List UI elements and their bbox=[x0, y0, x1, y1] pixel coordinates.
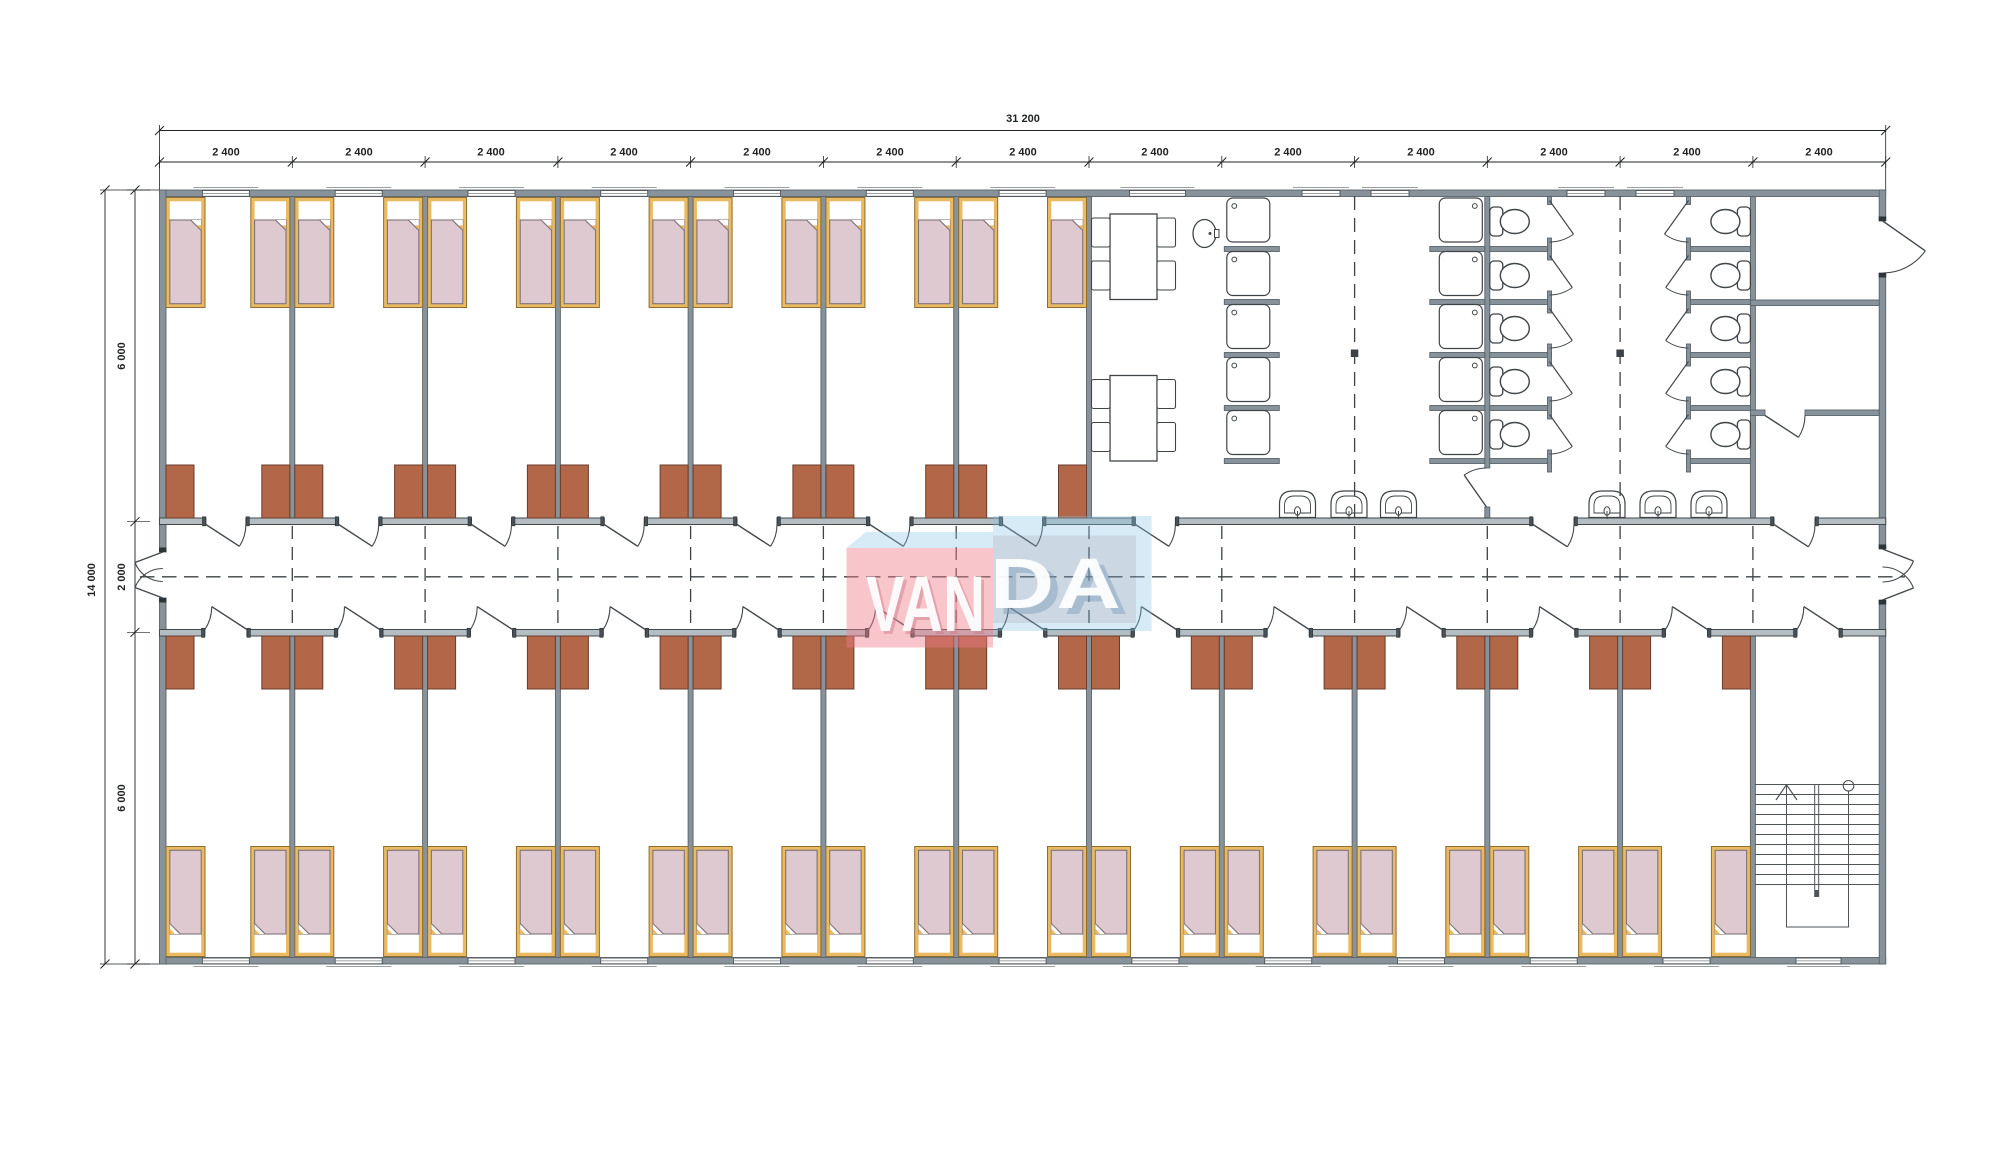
svg-text:2 400: 2 400 bbox=[345, 147, 373, 159]
svg-text:6 000: 6 000 bbox=[116, 342, 128, 370]
svg-text:VAN: VAN bbox=[866, 559, 985, 648]
svg-text:DA: DA bbox=[990, 544, 1123, 624]
svg-text:6 000: 6 000 bbox=[116, 784, 128, 812]
svg-text:2 400: 2 400 bbox=[477, 147, 505, 159]
svg-text:2 400: 2 400 bbox=[212, 147, 240, 159]
svg-text:2 400: 2 400 bbox=[610, 147, 638, 159]
svg-text:31 200: 31 200 bbox=[1006, 113, 1040, 125]
svg-text:2 400: 2 400 bbox=[743, 147, 771, 159]
svg-text:2 400: 2 400 bbox=[1141, 147, 1169, 159]
svg-text:2 400: 2 400 bbox=[1009, 147, 1037, 159]
svg-text:2 400: 2 400 bbox=[1540, 147, 1568, 159]
svg-text:2 400: 2 400 bbox=[1805, 147, 1833, 159]
svg-text:2 000: 2 000 bbox=[116, 563, 128, 591]
svg-text:2 400: 2 400 bbox=[1274, 147, 1302, 159]
svg-text:2 400: 2 400 bbox=[1407, 147, 1435, 159]
svg-text:2 400: 2 400 bbox=[876, 147, 904, 159]
svg-text:2 400: 2 400 bbox=[1673, 147, 1701, 159]
svg-text:14 000: 14 000 bbox=[86, 563, 98, 597]
